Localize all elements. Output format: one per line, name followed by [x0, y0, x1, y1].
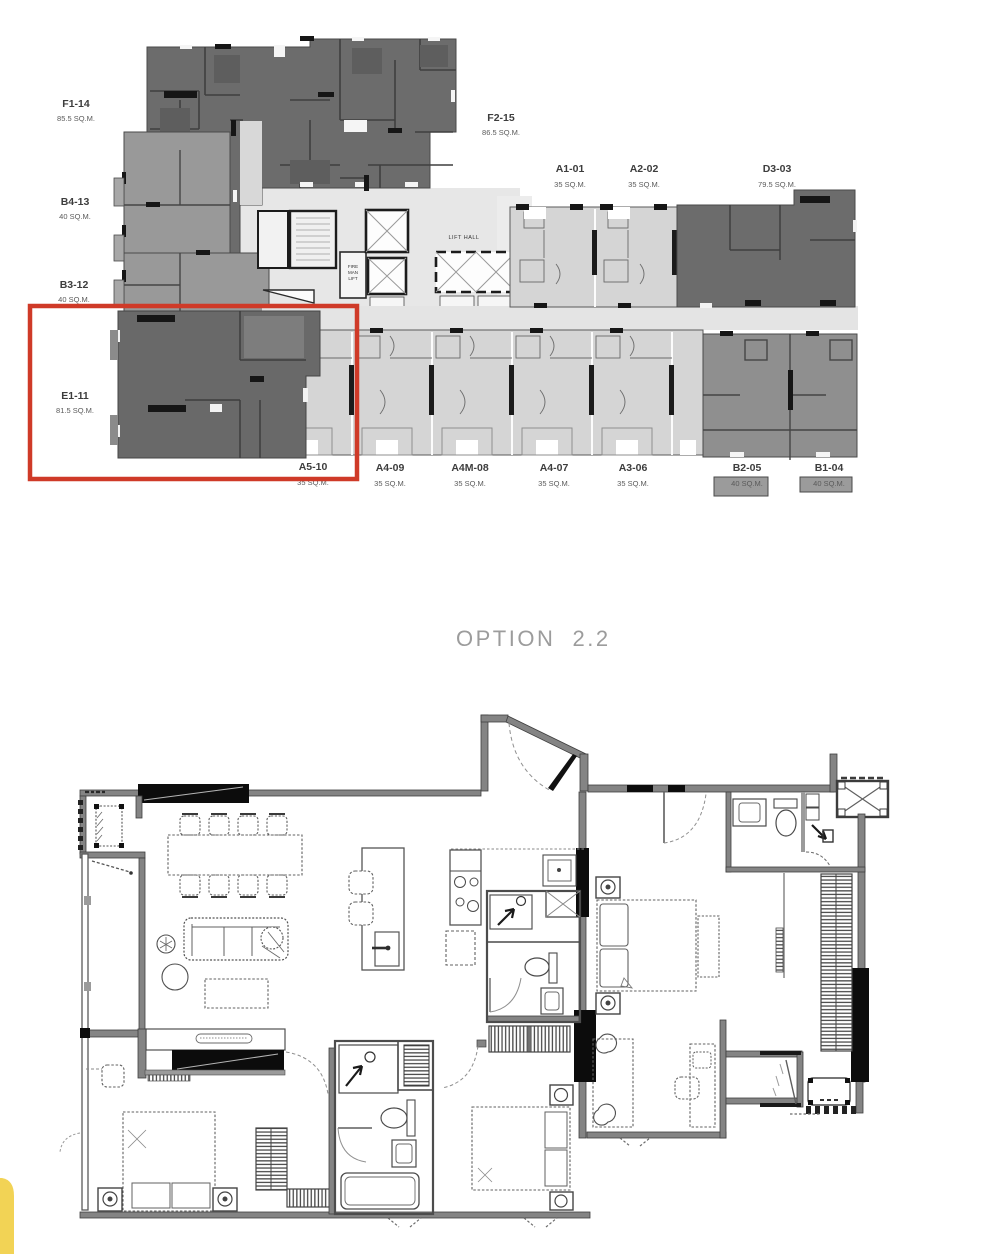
- svg-text:A2-02: A2-02: [630, 163, 659, 175]
- svg-text:OPTION 2.2: OPTION 2.2: [456, 626, 611, 651]
- svg-text:MAN: MAN: [348, 270, 358, 275]
- svg-text:LIFT HALL: LIFT HALL: [449, 235, 480, 241]
- svg-text:40 SQ.M.: 40 SQ.M.: [58, 295, 90, 304]
- svg-text:FIRE: FIRE: [348, 264, 358, 269]
- svg-text:F1-14: F1-14: [62, 98, 90, 110]
- svg-text:79.5 SQ.M.: 79.5 SQ.M.: [758, 180, 796, 189]
- svg-text:B1-04: B1-04: [815, 462, 844, 474]
- svg-text:35 SQ.M.: 35 SQ.M.: [454, 479, 486, 488]
- svg-text:LIFT: LIFT: [348, 276, 358, 281]
- svg-text:35 SQ.M.: 35 SQ.M.: [554, 180, 586, 189]
- svg-text:40 SQ.M.: 40 SQ.M.: [59, 212, 91, 221]
- svg-text:35 SQ.M.: 35 SQ.M.: [628, 180, 660, 189]
- svg-text:B3-12: B3-12: [60, 279, 89, 291]
- svg-text:B4-13: B4-13: [61, 196, 90, 208]
- svg-text:E1-11: E1-11: [61, 390, 89, 402]
- svg-text:35 SQ.M.: 35 SQ.M.: [617, 479, 649, 488]
- svg-text:40 SQ.M.: 40 SQ.M.: [813, 479, 845, 488]
- svg-text:40 SQ.M.: 40 SQ.M.: [731, 479, 763, 488]
- svg-text:85.5 SQ.M.: 85.5 SQ.M.: [57, 114, 95, 123]
- svg-text:A1-01: A1-01: [556, 163, 585, 175]
- svg-text:35 SQ.M.: 35 SQ.M.: [538, 479, 570, 488]
- svg-text:35 SQ.M.: 35 SQ.M.: [374, 479, 406, 488]
- svg-text:D3-03: D3-03: [763, 163, 792, 175]
- svg-text:A4-07: A4-07: [540, 462, 569, 474]
- svg-text:A5-10: A5-10: [299, 461, 328, 473]
- svg-text:86.5 SQ.M.: 86.5 SQ.M.: [482, 128, 520, 137]
- svg-text:A4-09: A4-09: [376, 462, 405, 474]
- svg-text:A4M-08: A4M-08: [451, 462, 489, 474]
- svg-text:F2-15: F2-15: [487, 112, 515, 124]
- svg-text:81.5 SQ.M.: 81.5 SQ.M.: [56, 406, 94, 415]
- svg-text:B2-05: B2-05: [733, 462, 762, 474]
- svg-text:A3-06: A3-06: [619, 462, 648, 474]
